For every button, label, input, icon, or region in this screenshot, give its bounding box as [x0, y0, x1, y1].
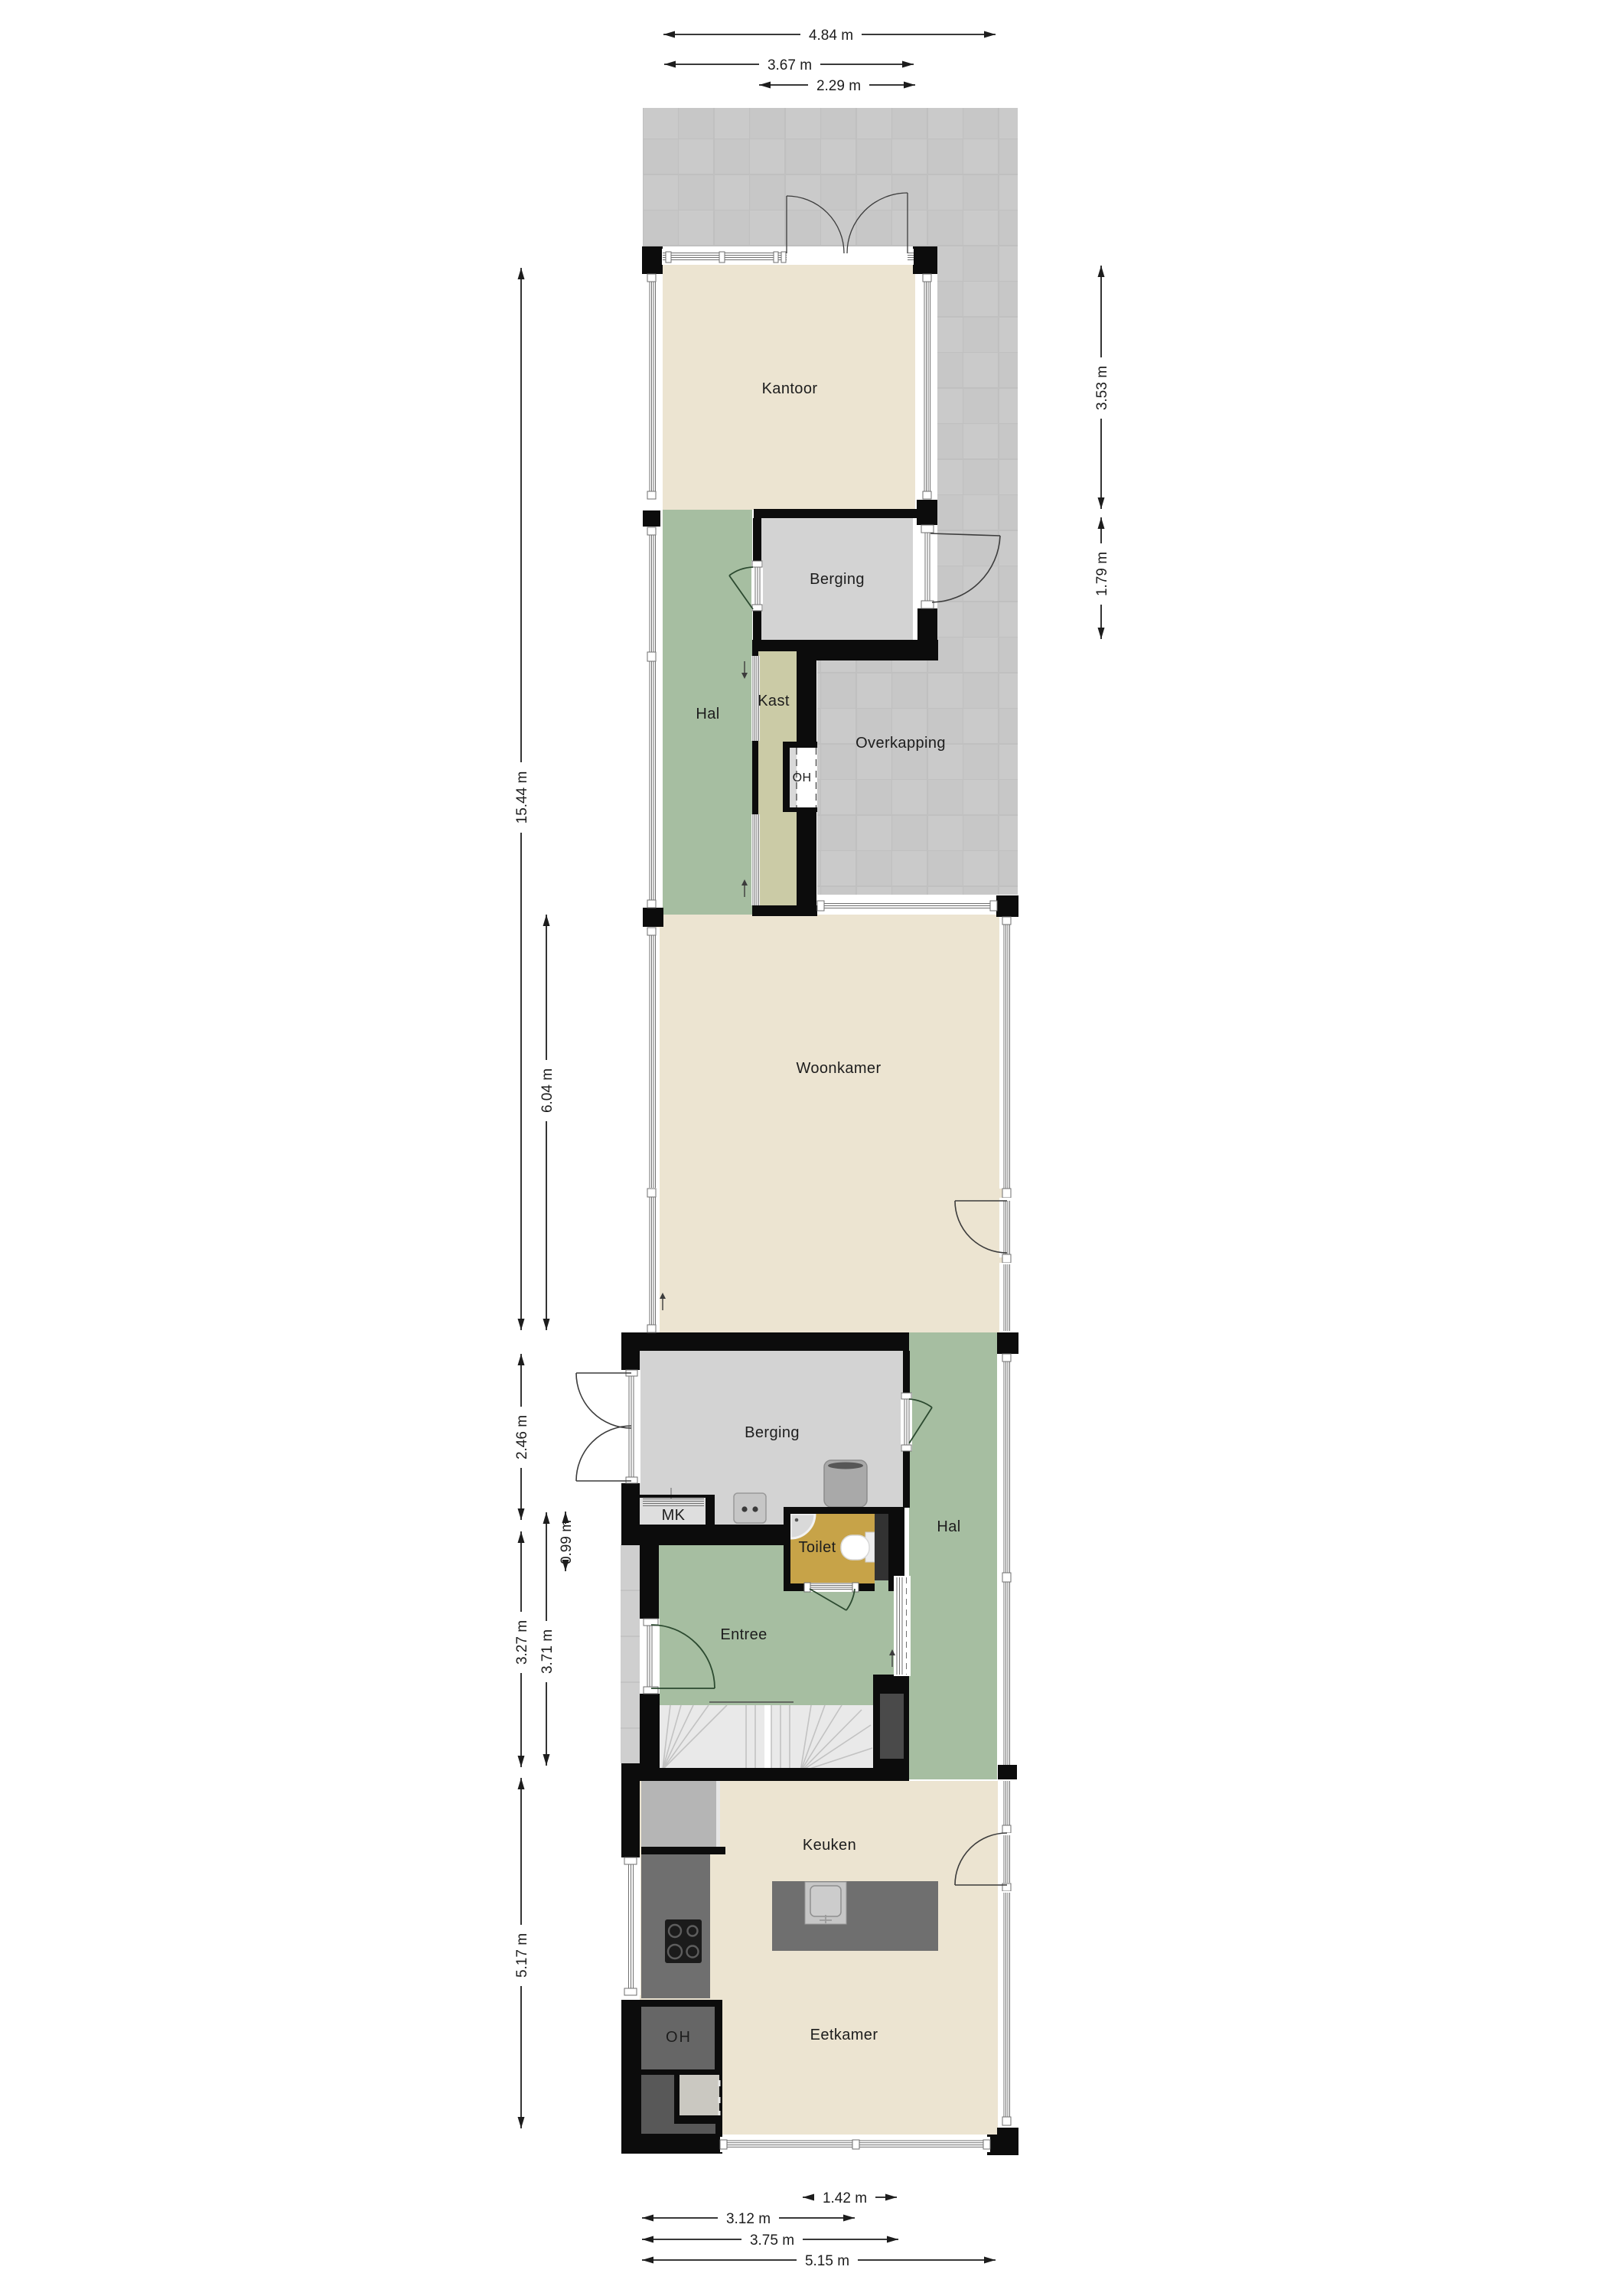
svg-text:3.27 m: 3.27 m: [514, 1620, 530, 1665]
svg-text:MK: MK: [662, 1507, 686, 1524]
svg-text:15.44 m: 15.44 m: [514, 771, 530, 824]
svg-text:Berging: Berging: [810, 571, 865, 588]
svg-text:Woonkamer: Woonkamer: [796, 1060, 881, 1077]
svg-text:5.17 m: 5.17 m: [514, 1933, 530, 1978]
svg-text:1.42 m: 1.42 m: [823, 2190, 867, 2206]
svg-text:2.46 m: 2.46 m: [514, 1415, 530, 1459]
svg-text:0.99 m: 0.99 m: [559, 1520, 575, 1564]
svg-text:2.29 m: 2.29 m: [816, 78, 861, 94]
svg-text:OH: OH: [666, 2029, 692, 2046]
svg-text:5.15 m: 5.15 m: [805, 2253, 849, 2269]
svg-text:4.84 m: 4.84 m: [809, 28, 853, 44]
svg-text:Kantoor: Kantoor: [762, 380, 818, 397]
svg-text:OH: OH: [793, 771, 812, 784]
svg-text:1.79 m: 1.79 m: [1094, 552, 1110, 596]
svg-text:6.04 m: 6.04 m: [539, 1068, 556, 1113]
svg-text:Eetkamer: Eetkamer: [810, 2027, 878, 2043]
svg-text:Keuken: Keuken: [803, 1837, 856, 1854]
svg-text:Hal: Hal: [937, 1518, 960, 1535]
svg-text:3.75 m: 3.75 m: [750, 2232, 794, 2249]
svg-text:Entree: Entree: [720, 1626, 767, 1643]
svg-text:Overkapping: Overkapping: [855, 735, 946, 752]
svg-text:Hal: Hal: [696, 706, 719, 722]
svg-text:3.53 m: 3.53 m: [1094, 366, 1110, 410]
svg-text:Toilet: Toilet: [798, 1539, 836, 1556]
svg-text:3.71 m: 3.71 m: [539, 1629, 556, 1674]
svg-text:3.12 m: 3.12 m: [726, 2211, 771, 2227]
svg-text:Kast: Kast: [758, 693, 790, 709]
svg-text:Berging: Berging: [745, 1424, 800, 1441]
svg-text:3.67 m: 3.67 m: [768, 57, 812, 73]
